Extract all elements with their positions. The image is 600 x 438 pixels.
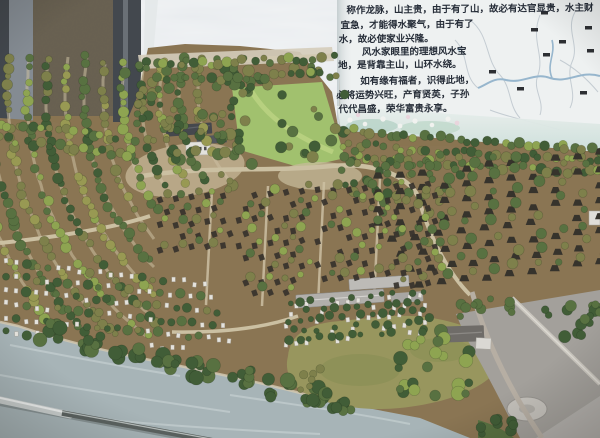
photo-of-terrain-model: 称作龙脉，山主贵，由于有了山，故必有达官显贵，水主财 宜急，才能得水聚气，由于有… xyxy=(0,0,600,438)
photo-vignette xyxy=(0,0,600,438)
scene-canvas: 称作龙脉，山主贵，由于有了山，故必有达官显贵，水主财 宜急，才能得水聚气，由于有… xyxy=(0,0,600,438)
